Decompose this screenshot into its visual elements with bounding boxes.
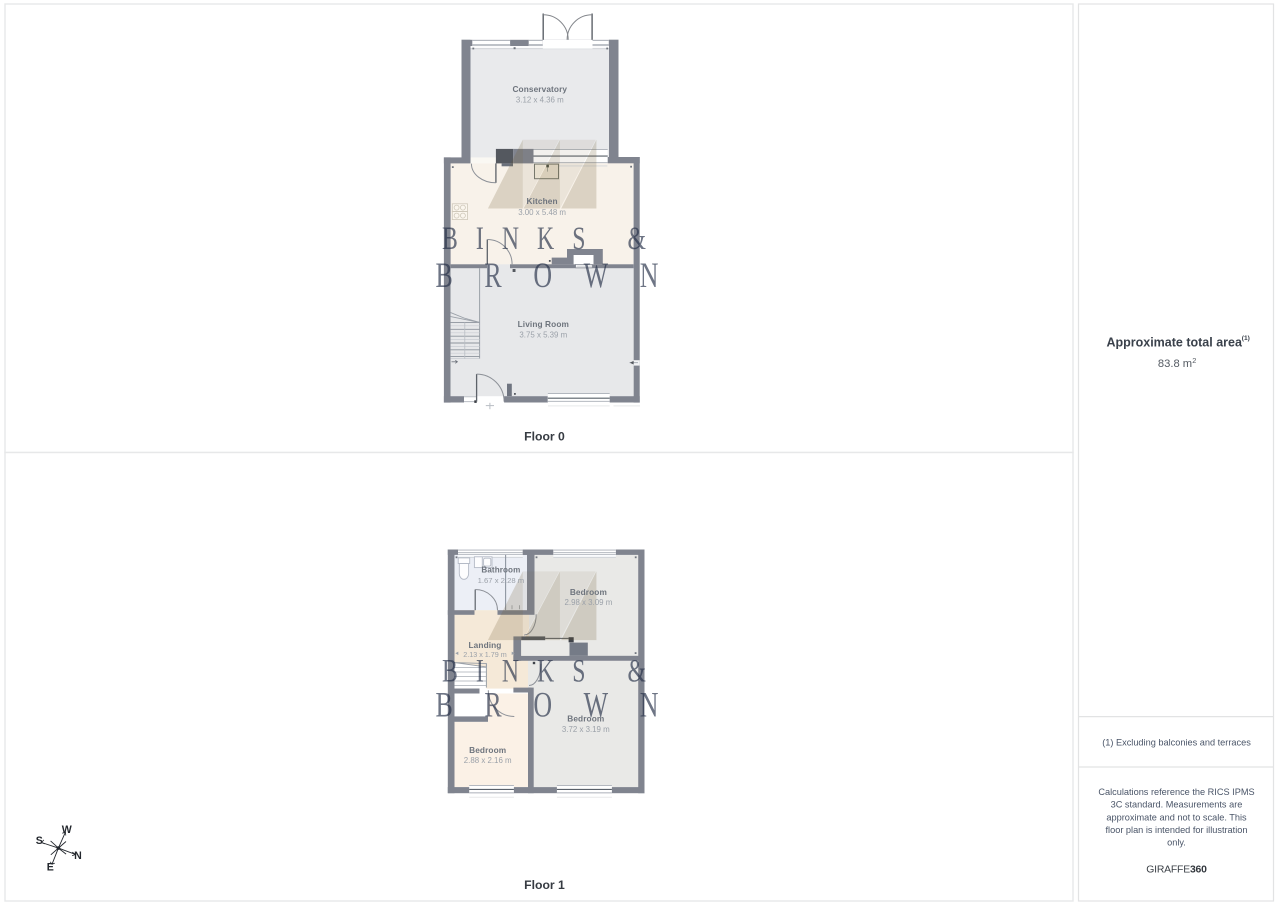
svg-text:Conservatory: Conservatory [512,84,567,94]
svg-text:Bathroom: Bathroom [481,565,520,574]
svg-text:BROWN: BROWN [436,684,682,724]
svg-text:83.8 m: 83.8 m [1158,358,1192,370]
svg-text:W: W [62,824,72,836]
svg-text:GIRAFFE360: GIRAFFE360 [1146,864,1207,875]
svg-text:Approximate total area: Approximate total area [1106,336,1243,350]
svg-text:approximate and not to scale.: approximate and not to scale. This [1106,812,1247,822]
svg-text:Bedroom: Bedroom [469,745,506,755]
svg-text:3.00 x 5.48 m: 3.00 x 5.48 m [518,208,566,217]
svg-text:Landing: Landing [469,640,502,650]
svg-text:2: 2 [1192,356,1196,365]
svg-text:3C standard. Measurements are: 3C standard. Measurements are [1111,800,1243,810]
svg-text:3.12 x 4.36 m: 3.12 x 4.36 m [516,95,564,104]
svg-text:(1) Excluding balconies and te: (1) Excluding balconies and terraces [1102,738,1251,748]
svg-text:Kitchen: Kitchen [527,196,558,206]
svg-text:Floor 0: Floor 0 [524,430,565,444]
svg-text:N: N [74,850,82,862]
svg-text:3.75 x 5.39 m: 3.75 x 5.39 m [519,331,567,340]
svg-text:3.72 x 3.19 m: 3.72 x 3.19 m [562,725,610,734]
svg-text:Living Room: Living Room [518,319,569,329]
svg-text:Calculations reference the RIC: Calculations reference the RICS IPMS [1098,787,1254,797]
svg-text:S: S [36,835,43,847]
svg-text:BROWN: BROWN [436,255,682,295]
svg-text:2.13 x 1.79 m: 2.13 x 1.79 m [463,650,507,659]
svg-text:Bedroom: Bedroom [567,714,604,724]
svg-text:Floor 1: Floor 1 [524,878,565,892]
svg-text:2.98 x 3.09 m: 2.98 x 3.09 m [564,598,612,607]
svg-text:E: E [47,862,54,874]
svg-text:floor plan is intended for ill: floor plan is intended for illustration [1106,825,1248,835]
svg-text:Bedroom: Bedroom [570,587,607,597]
svg-text:2.88 x 2.16 m: 2.88 x 2.16 m [464,756,512,765]
svg-text:only.: only. [1167,838,1186,848]
svg-text:1.67 x 2.28 m: 1.67 x 2.28 m [478,576,525,585]
svg-text:(1): (1) [1242,335,1250,342]
svg-text:BINKS &: BINKS & [442,220,663,257]
